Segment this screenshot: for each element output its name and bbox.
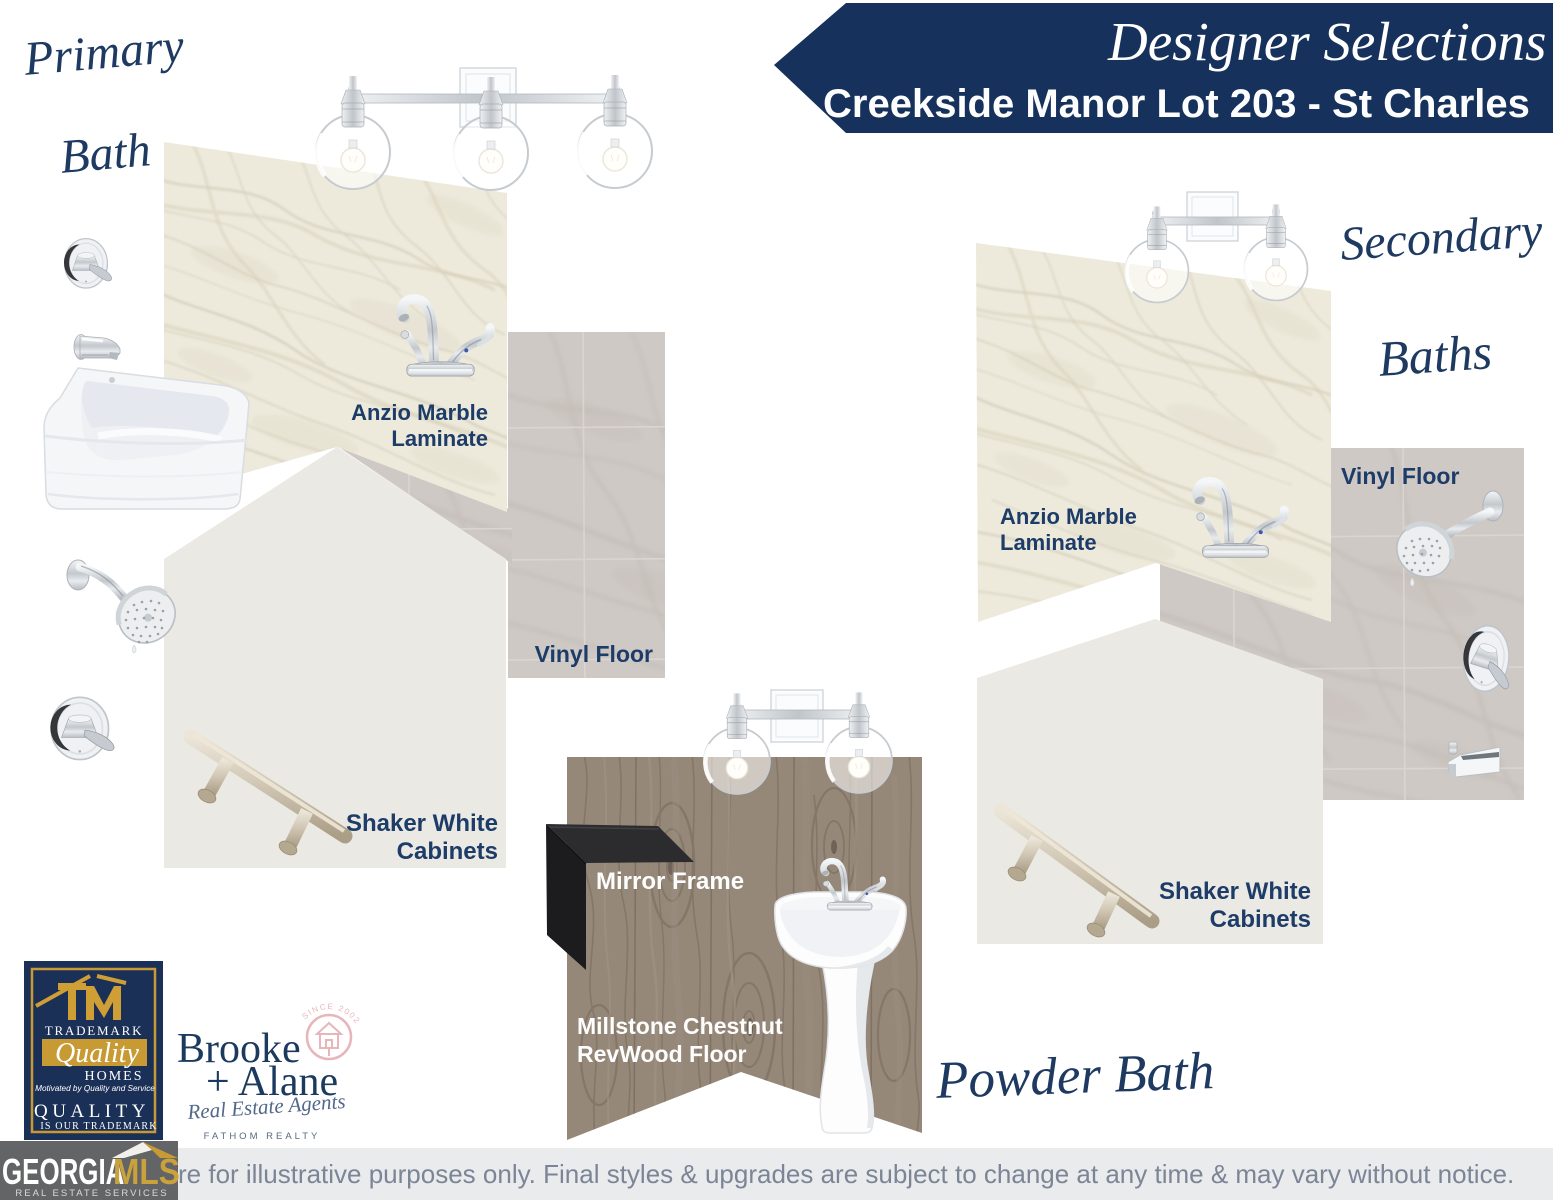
- svg-text:MLS: MLS: [113, 1152, 180, 1192]
- svg-text:HOMES: HOMES: [84, 1069, 143, 1084]
- svg-text:GEORGIA: GEORGIA: [2, 1152, 124, 1192]
- svg-text:Motivated by Quality and Servi: Motivated by Quality and Service: [35, 1084, 155, 1093]
- svg-text:QUALITY: QUALITY: [34, 1101, 150, 1122]
- svg-text:FATHOM REALTY: FATHOM REALTY: [204, 1131, 321, 1142]
- svg-text:Quality: Quality: [55, 1038, 140, 1069]
- svg-text:TRADEMARK: TRADEMARK: [45, 1023, 144, 1038]
- svg-text:REAL ESTATE SERVICES: REAL ESTATE SERVICES: [15, 1188, 168, 1199]
- svg-text:IS OUR TRADEMARK: IS OUR TRADEMARK: [40, 1121, 157, 1132]
